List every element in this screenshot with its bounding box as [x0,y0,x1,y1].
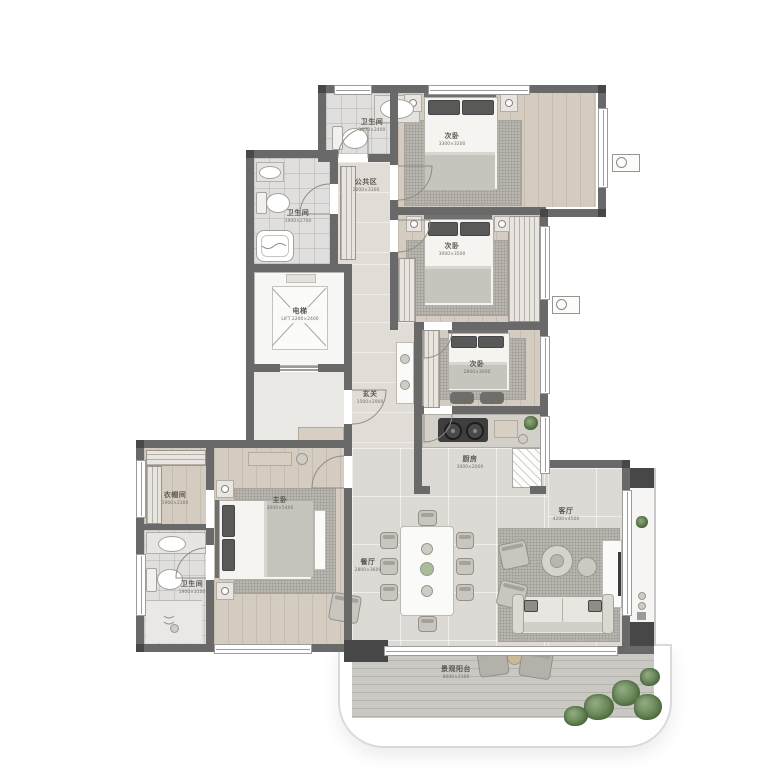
cutting-board [494,420,518,438]
dining-chair [456,584,474,601]
wardrobe-hatch [422,330,440,408]
bowl-icon [518,434,528,444]
window [428,85,530,95]
burner-icon [466,422,484,440]
room-label: 玄关 1500×2900 [355,390,385,406]
wall [540,460,630,468]
wall [414,486,430,494]
bed-pillow [428,100,460,115]
bed-blanket [264,501,313,577]
bed-headboard [215,500,219,578]
wall-corner [540,209,548,217]
wall [246,150,338,158]
elevator-counterweight [286,274,316,283]
room-name: 玄关 [355,390,385,399]
decor-icon [400,380,410,390]
centerpiece-icon [420,562,434,576]
window [540,416,550,474]
sofa-back [517,622,607,632]
wall [452,406,546,414]
room-label: 公共区 2000×3100 [351,178,381,194]
sofa-armrest [512,594,524,634]
nightstand [216,582,234,600]
wall-corner [136,440,144,448]
room-name: 公共区 [351,178,381,187]
plant-icon [524,416,538,430]
room-label: 衣帽间 1900×2300 [160,491,190,507]
bed-pillow [222,505,235,537]
shower-area [146,600,202,643]
room-label: 厨房 3000×2000 [455,455,485,471]
wall [144,524,206,530]
window [136,554,146,616]
wall [452,322,546,330]
sofa-cushion-divider [562,598,563,622]
room-label: 次卧 3300×3200 [437,132,467,148]
wall [390,207,398,220]
bed-blanket [425,266,491,303]
tableware-icon [421,585,433,597]
burner-icon [444,422,462,440]
coffee-table-inner [550,554,564,568]
dining-chair [456,558,474,575]
room-dim: 8000×2100 [443,675,470,681]
tv-icon [618,552,621,596]
window [598,108,608,188]
floor-hall-mid [346,264,390,322]
sink-icon [259,166,281,179]
room-name: 卫生间 [177,580,207,589]
kitchen-sink-icon [512,448,542,488]
room-dim: 1900×2300 [162,501,189,507]
wall [414,406,424,414]
wall [246,150,254,448]
wardrobe-hatch [508,216,540,322]
room-dim: 3300×3200 [439,142,466,148]
wardrobe-hatch [146,450,206,466]
toilet-tank [146,568,157,592]
bed-end-bench [314,510,326,570]
wall [246,264,352,272]
bed-pillow [460,222,490,236]
wall [246,364,280,372]
room-label: 餐厅 2800×3600 [353,558,383,574]
ac-unit-icon [552,296,580,314]
bed-headboard [448,330,508,333]
room-name: 电梯 [279,307,320,316]
wall-corner [598,85,606,93]
plant-icon [636,516,648,528]
wall-corner [136,644,144,652]
wall-corner [318,85,326,93]
room-dim: 1900×2700 [285,219,312,225]
tableware-icon [421,543,433,555]
bed-pillow [462,100,494,115]
pipe-icon [638,592,646,600]
elevator-door [280,366,318,368]
window [622,490,632,616]
wall [530,486,546,494]
wall-corner [246,150,254,158]
decor-icon [400,354,410,364]
room-name: 衣帽间 [160,491,190,500]
room-label: 电梯 LIFT 2200×2400 [277,307,322,323]
shower-drain-icon [170,624,179,633]
room-name: 次卧 [462,360,492,369]
room-label: 主卧 3000×5400 [265,496,295,512]
wall-corner [598,209,606,217]
ac-unit-icon [612,154,640,172]
wall [344,264,352,372]
wall [390,252,398,330]
bed-pillow [428,222,458,236]
bathtub-icon [256,230,294,262]
wall [540,209,606,217]
floor-plan: 卫生间 1600×2400 公共区 2000×3100 卫生间 1900×270… [0,0,783,772]
wardrobe-hatch [398,258,416,322]
room-dim: 1900×3100 [179,590,206,596]
room-name: 卫生间 [283,209,313,218]
dining-chair [418,616,437,632]
decor-icon [296,453,308,465]
room-dim: 2000×3100 [353,188,380,194]
room-dim: 3000×3500 [439,252,466,258]
room-label: 卫生间 1600×2400 [357,118,387,134]
bed-pillow [478,336,504,348]
room-label: 卫生间 1900×3100 [177,580,207,596]
room-label: 次卧 2800×3000 [462,360,492,376]
wall [344,448,352,456]
bed-pillow [222,539,235,571]
room-name: 主卧 [265,496,295,505]
room-label: 景观阳台 8000×2100 [441,665,471,681]
wall [390,85,398,165]
room-dim: 4200×4500 [553,517,580,523]
sofa-armrest [602,594,614,634]
room-name: 厨房 [455,455,485,464]
wall [344,488,352,652]
platform-edge-line [654,468,656,646]
wall [398,207,546,215]
platform-pier [630,468,654,488]
dining-chair [380,532,398,549]
sliding-door-window [384,646,618,656]
nightstand [494,216,510,232]
window [540,226,550,300]
room-dim: 2800×3000 [464,370,491,376]
wall [206,580,214,652]
wall [368,154,398,162]
room-name: 次卧 [437,242,467,251]
wall [206,448,214,490]
console-table [396,342,414,404]
window [136,460,146,518]
room-name: 客厅 [551,507,581,516]
side-table [577,557,597,577]
bed-bench-stool [450,392,474,404]
room-label: 次卧 3000×3500 [437,242,467,258]
dining-chair [456,532,474,549]
bed-bench-stool [480,392,504,404]
room-dim: 1600×2400 [359,128,386,134]
wall [136,440,352,448]
pipe-icon [638,602,646,610]
bed-headboard [424,215,492,219]
nightstand [406,216,422,232]
window [334,85,372,95]
room-name: 景观阳台 [441,665,471,674]
bed-blanket [425,152,495,190]
throw-pillow [588,600,602,612]
window [214,644,312,654]
wall [206,528,214,545]
dining-chair [418,510,437,526]
room-dim: 3000×5400 [267,506,294,512]
room-dim: 2800×3600 [355,568,382,574]
room-name: 卫生间 [357,118,387,127]
nightstand [216,480,234,498]
sink-icon [158,536,186,552]
wall [344,372,352,390]
wall [318,364,352,372]
room-name: 餐厅 [353,558,383,567]
room-label: 卫生间 1900×2700 [283,209,313,225]
floor-drain-icon [637,612,646,620]
wall [330,158,338,184]
platform-pier [630,622,654,646]
nightstand [500,94,518,112]
balcony-pier [344,640,388,662]
dining-chair [380,584,398,601]
room-dim: 3000×2000 [457,465,484,471]
room-label: 客厅 4200×4500 [551,507,581,523]
window [540,336,550,394]
room-name: 次卧 [437,132,467,141]
dresser [248,452,292,466]
room-dim: LIFT 2200×2400 [281,317,318,323]
elevator-door [280,369,318,371]
room-dim: 1500×2900 [357,400,384,406]
wall-corner [622,460,630,468]
bed-pillow [451,336,477,348]
throw-pillow [524,600,538,612]
